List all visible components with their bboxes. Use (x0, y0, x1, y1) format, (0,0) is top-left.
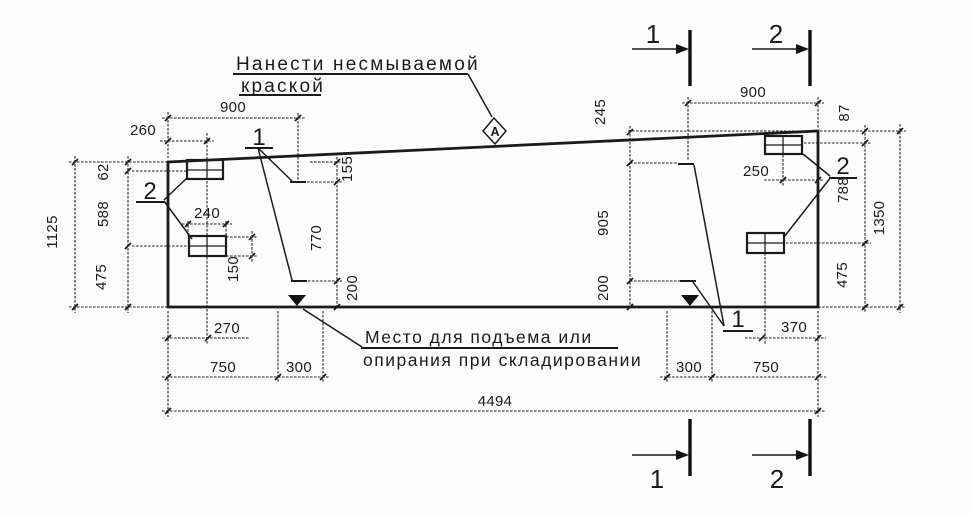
dimension-texts-vertical: 1125 62 588 475 155 770 200 150 245 905 … (44, 99, 888, 301)
callout-2-right: 2 (836, 153, 849, 180)
dim-900-top-right: 900 (740, 84, 766, 101)
dim-788: 788 (835, 177, 852, 203)
storage-note-line2: опирания при складировании (363, 350, 642, 370)
paint-note-line1: Нанести несмываемой (236, 54, 480, 75)
storage-note-line1: Место для подъема или (365, 327, 593, 347)
callout-2-left: 2 (143, 178, 156, 205)
annotation-notes: Нанести несмываемой краской Место для по… (236, 54, 642, 370)
dim-270: 270 (214, 320, 240, 337)
dim-200-left: 200 (344, 275, 361, 301)
section-label-1-bottom: 1 (650, 464, 664, 494)
dim-475-right: 475 (834, 262, 851, 288)
dim-1125: 1125 (44, 215, 61, 248)
dim-750-right: 750 (753, 359, 779, 376)
dim-240: 240 (194, 205, 220, 222)
drawing-canvas: А 900 260 900 240 250 270 750 300 300 75… (0, 0, 971, 515)
surface-quality-mark: А (483, 118, 506, 144)
paint-note-line2: краской (241, 76, 325, 97)
dim-245: 245 (592, 99, 609, 125)
dim-905: 905 (595, 210, 612, 236)
surface-mark-letter: А (490, 125, 499, 139)
dim-1350: 1350 (871, 201, 888, 236)
technical-drawing-beam-elevation: А 900 260 900 240 250 270 750 300 300 75… (0, 0, 971, 515)
dim-4494-overall: 4494 (478, 393, 513, 410)
dim-260: 260 (130, 122, 156, 139)
dim-300-left: 300 (286, 359, 312, 376)
dim-155: 155 (339, 156, 356, 182)
dim-300-right: 300 (676, 359, 702, 376)
dim-150: 150 (225, 256, 242, 282)
section-label-2-bottom: 2 (770, 464, 784, 494)
dim-900-top-left: 900 (220, 99, 246, 116)
beam-outline (168, 131, 818, 307)
section-arrowheads (676, 44, 809, 460)
callout-labels: 1 1 2 2 (143, 124, 849, 333)
dim-370: 370 (781, 319, 807, 336)
section-label-1-top: 1 (646, 19, 660, 49)
dim-588: 588 (95, 201, 112, 227)
dim-62: 62 (95, 163, 112, 180)
section-label-2-top: 2 (769, 19, 783, 49)
callout-1-right: 1 (731, 306, 744, 333)
dim-770: 770 (308, 225, 325, 251)
dim-200-right: 200 (595, 275, 612, 301)
dim-87: 87 (836, 104, 853, 121)
dim-250: 250 (743, 163, 769, 180)
dim-750-left: 750 (210, 359, 236, 376)
callout-1-left: 1 (252, 124, 265, 151)
dim-475-left: 475 (93, 264, 110, 290)
embedded-anchor-plates (187, 136, 802, 256)
